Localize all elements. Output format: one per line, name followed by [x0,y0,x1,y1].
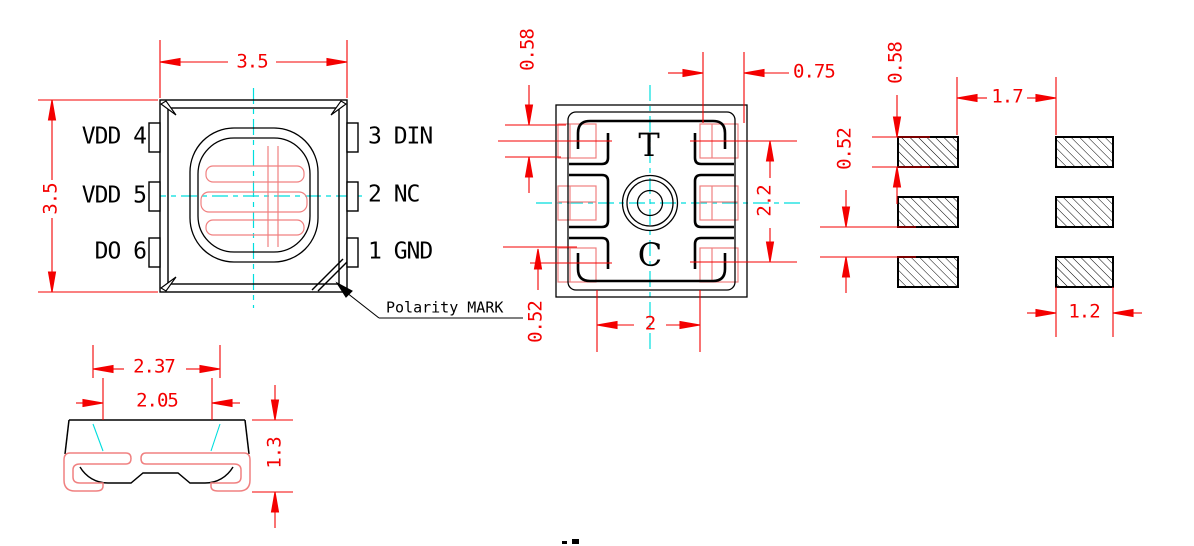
bottom-view-mark-c: C [638,239,662,271]
dim-top-width: 3.5 [236,53,267,72]
bottom-view-mark-t: T [638,129,659,161]
top-view-drawing [38,40,523,318]
pin-label-nc2: 2 NC [368,184,419,207]
dim-bottom-row-span: 2.2 [756,185,775,216]
drawing-canvas: 3.5 3.5 VDD 4 VDD 5 DO 6 3 DIN 2 NC 1 GN… [0,0,1194,546]
pin-label-vdd4: VDD 4 [36,126,146,149]
dim-footprint-pad-height: 0.58 [887,42,906,84]
pin-label-din3: 3 DIN [368,126,432,149]
side-view-drawing [64,345,293,528]
dim-side-height: 1.3 [266,437,285,468]
polarity-mark-label: Polarity MARK [386,301,503,316]
dim-bottom-inner-width: 2 [645,315,655,334]
dim-footprint-col-gap: 1.7 [991,88,1022,107]
dim-bottom-pad-width: 0.75 [793,63,835,82]
bottom-edge-marks [562,539,579,544]
pin-label-do6: DO 6 [36,241,146,264]
dim-side-inner-width: 2.05 [136,392,178,411]
drawing-geometry [0,0,1194,546]
dim-footprint-row-gap: 0.52 [836,128,855,170]
dim-bottom-pad-height: 0.58 [519,29,538,71]
dim-bottom-pad-offset: 0.52 [527,301,546,343]
dim-footprint-pad-width: 1.2 [1068,303,1099,322]
dim-side-outer-width: 2.37 [133,358,175,377]
pin-label-vdd5: VDD 5 [36,185,146,208]
footprint-drawing [820,77,1142,337]
pin-label-gnd1: 1 GND [368,241,432,264]
